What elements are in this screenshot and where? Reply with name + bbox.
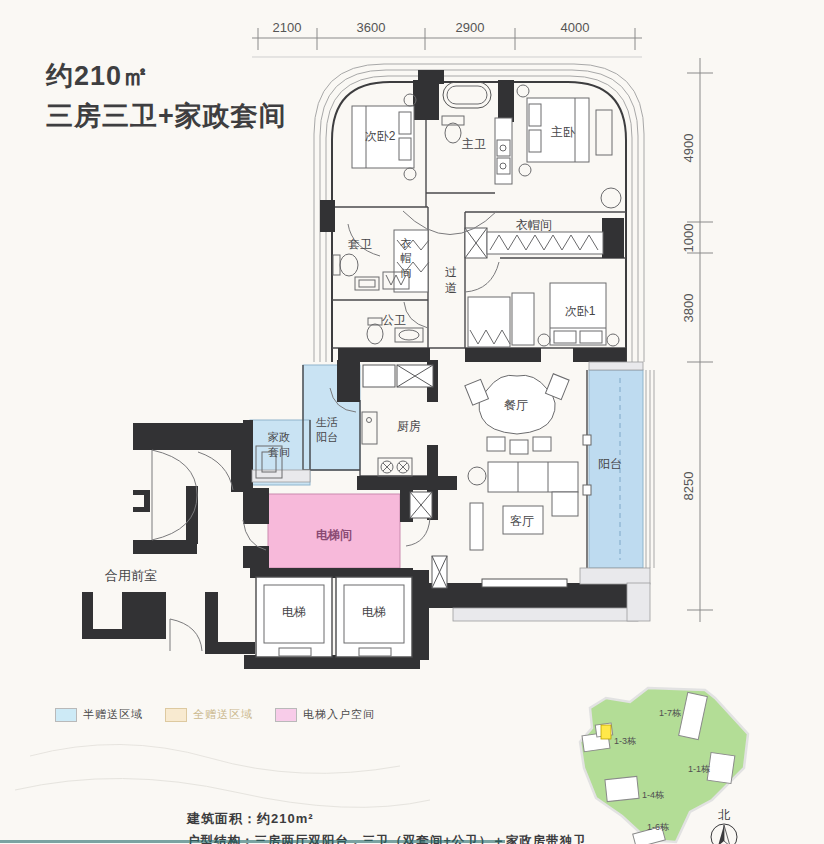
label-kitchen: 厨房 — [397, 419, 421, 433]
site-label-1-1: 1-1栋 — [688, 764, 710, 774]
legend-swatch-full-gift — [165, 708, 187, 722]
dim-right-3: 3800 — [681, 294, 696, 323]
dim-right-2: 1000 — [681, 224, 696, 253]
label-master-bedroom: 主卧 — [551, 125, 575, 139]
label-cloak-left-1: 衣 — [401, 237, 412, 249]
label-housekeeping-1: 家政 — [268, 431, 290, 443]
legend: 半赠送区域 全赠送区域 电梯入户空间 — [55, 707, 375, 722]
legend-item-elevator-entry: 电梯入户空间 — [275, 707, 375, 722]
dim-top-3: 2900 — [456, 20, 485, 35]
legend-label-elevator-entry: 电梯入户空间 — [303, 707, 375, 722]
footer-specs: 建筑面积：约210m² 户型结构：三房两厅双阳台，三卫（双套间+公卫）＋家政房带… — [187, 810, 587, 844]
highlighted-building — [601, 725, 611, 739]
site-label-1-6: 1-6栋 — [647, 822, 669, 832]
label-shared-front: 合用前室 — [105, 568, 157, 583]
label-balcony: 阳台 — [598, 457, 622, 471]
label-cloak-left-2: 帽 — [401, 252, 412, 264]
compass-needle-dark — [718, 825, 724, 844]
label-elevator-hall: 电梯间 — [316, 528, 352, 542]
legend-label-full-gift: 全赠送区域 — [193, 707, 253, 722]
label-cloak-left-3: 间 — [401, 267, 412, 279]
label-corridor-2: 道 — [445, 281, 457, 295]
legend-swatch-semi-gift — [55, 708, 77, 722]
site-label-1-3: 1-3栋 — [614, 736, 636, 746]
label-housekeeping-2: 套间 — [268, 446, 290, 458]
colored-zones — [250, 365, 643, 568]
site-label-1-4: 1-4栋 — [642, 790, 664, 800]
label-corridor-1: 过 — [445, 265, 457, 279]
label-elevator-1: 电梯 — [282, 605, 306, 619]
dim-right-1: 4900 — [681, 134, 696, 163]
wall-notch — [133, 495, 144, 507]
footer-area-line: 建筑面积：约210m² — [187, 810, 587, 828]
dim-top-4: 4000 — [561, 20, 590, 35]
compass-needle-light — [724, 825, 730, 844]
dim-top-2: 3600 — [357, 20, 386, 35]
label-master-bath: 主卫 — [462, 137, 486, 151]
building-1-4 — [605, 776, 639, 801]
legend-item-full-gift: 全赠送区域 — [165, 707, 253, 722]
label-living-balcony-2: 阳台 — [316, 431, 338, 443]
compass-north-label: 北 — [718, 808, 730, 822]
watermark-curves — [15, 744, 430, 807]
label-living-balcony-1: 生活 — [316, 416, 338, 428]
label-dining: 餐厅 — [504, 398, 528, 412]
label-elevator-2: 电梯 — [362, 605, 386, 619]
label-public-bath: 公卫 — [382, 313, 406, 327]
label-cloak-right: 衣帽间 — [515, 218, 552, 232]
dim-right-4: 8250 — [681, 472, 696, 501]
label-bedroom2: 次卧2 — [365, 129, 396, 143]
legend-swatch-elevator-entry — [275, 708, 297, 722]
legend-label-semi-gift: 半赠送区域 — [83, 707, 143, 722]
window-jamb — [583, 485, 591, 495]
label-bedroom1: 次卧1 — [565, 304, 596, 318]
site-label-1-7: 1-7栋 — [659, 708, 681, 718]
label-living: 客厅 — [510, 514, 534, 528]
legend-item-semi-gift: 半赠送区域 — [55, 707, 143, 722]
window-jamb — [583, 435, 591, 445]
bottom-border-line — [0, 840, 505, 843]
label-suite-bath: 套卫 — [348, 237, 372, 251]
compass: 北 — [711, 808, 737, 844]
building-1-1 — [707, 752, 735, 783]
dim-top-1: 2100 — [273, 20, 302, 35]
floor-plan-page: 约210㎡ 三房三卫+家政套间 2100 3600 2900 4000 4900… — [0, 0, 824, 844]
